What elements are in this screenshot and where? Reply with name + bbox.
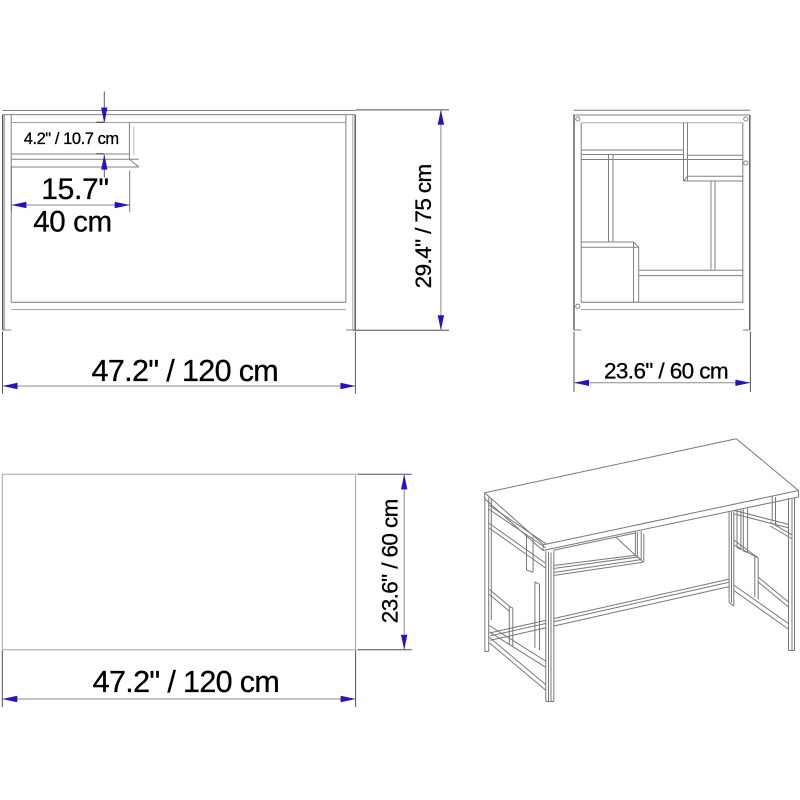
svg-text:47.2" / 120 cm: 47.2" / 120 cm bbox=[92, 354, 279, 388]
svg-text:15.7": 15.7" bbox=[41, 173, 109, 206]
svg-text:23.6" / 60 cm: 23.6" / 60 cm bbox=[604, 359, 728, 384]
svg-text:40 cm: 40 cm bbox=[33, 205, 112, 238]
svg-text:23.6" / 60 cm: 23.6" / 60 cm bbox=[378, 499, 403, 623]
svg-text:47.2" / 120 cm: 47.2" / 120 cm bbox=[93, 665, 280, 699]
svg-text:29.4" / 75 cm: 29.4" / 75 cm bbox=[411, 164, 436, 288]
svg-text:4.2" / 10.7 cm: 4.2" / 10.7 cm bbox=[24, 130, 119, 148]
